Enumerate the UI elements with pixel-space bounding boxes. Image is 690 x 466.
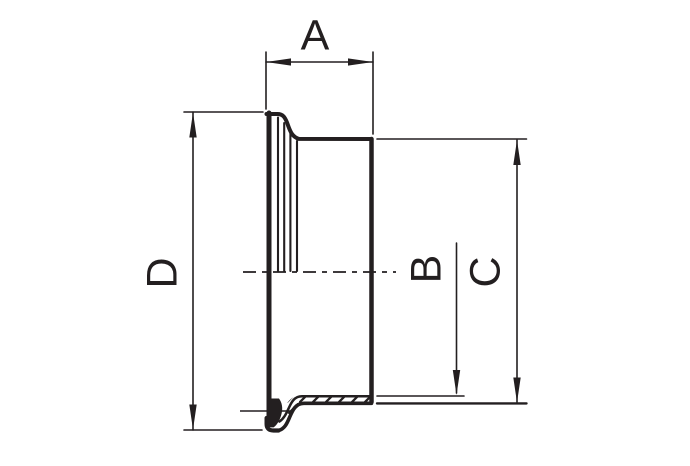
fitting-cross-section-drawing <box>0 0 690 466</box>
dimension-a-label: A <box>301 15 330 58</box>
dimension-c-label: C <box>465 256 508 287</box>
dimension-d <box>184 112 263 430</box>
dimension-d-label: D <box>142 257 185 288</box>
dim-b-arrow-down <box>453 370 460 395</box>
technical-drawing: A D B C <box>0 0 690 466</box>
dim-a-arrow-left <box>266 58 291 65</box>
dimension-a <box>266 52 373 134</box>
dim-a-arrow-right <box>348 58 373 65</box>
lip-section-fill <box>267 399 282 428</box>
dim-c-arrow-up <box>513 140 520 165</box>
dim-d-arrow-up <box>189 113 196 138</box>
dim-c-arrow-down <box>513 378 520 403</box>
dimension-b-label: B <box>406 255 449 284</box>
dim-d-arrow-down <box>189 405 196 430</box>
